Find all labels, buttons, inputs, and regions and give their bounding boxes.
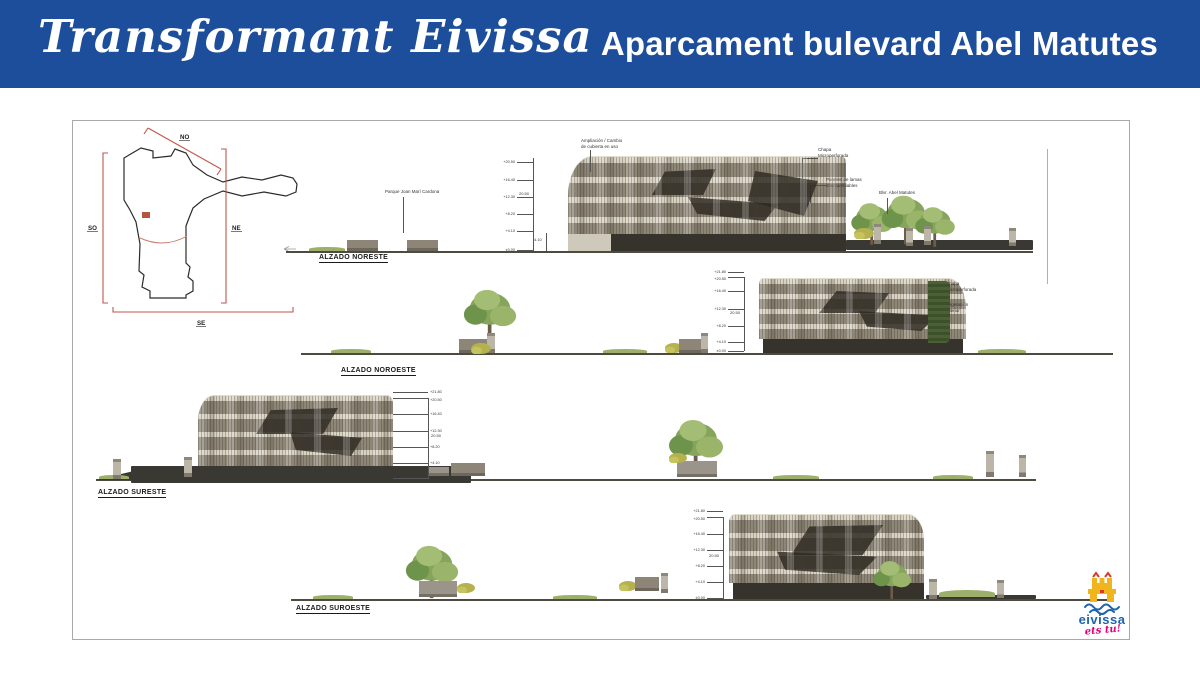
- leader-line: [403, 197, 404, 233]
- level-label: +20.50: [430, 398, 442, 402]
- facade-opening: [777, 549, 877, 575]
- level-line: [517, 197, 533, 198]
- level-label: +8.20: [505, 212, 515, 216]
- level-line: [728, 326, 744, 327]
- grass-mound: [553, 595, 597, 599]
- level-line: [393, 447, 428, 448]
- plan-label-ne: NE: [232, 225, 241, 232]
- site-plan: NO SO NE SE: [86, 126, 301, 336]
- building-facade: [198, 395, 393, 466]
- building-base: [611, 234, 846, 251]
- level-label: +21.80: [714, 270, 726, 274]
- level-line: [517, 214, 533, 215]
- level-line: [707, 598, 723, 599]
- grass-mound: [313, 595, 353, 599]
- level-label: +12.30: [503, 195, 515, 199]
- facade-opening: [791, 525, 883, 555]
- level-label: +8.20: [716, 324, 726, 328]
- level-label: +12.30: [430, 429, 442, 433]
- annotation-line: Ampliación / Cambio: [581, 138, 622, 144]
- dim-text: 20.50: [709, 553, 719, 558]
- level-label: +16.40: [503, 178, 515, 182]
- pillar: [924, 226, 931, 245]
- level-line: [517, 231, 533, 232]
- facade-opening: [859, 309, 937, 331]
- elevation-label: ALZADO SURESTE: [98, 489, 166, 498]
- level-label: +4.10: [695, 580, 705, 584]
- pillar: [929, 579, 937, 599]
- level-label: +20.50: [503, 160, 515, 164]
- level-line: [393, 392, 428, 393]
- facade-opening: [256, 408, 338, 434]
- facade-opening: [819, 291, 889, 313]
- level-label: +16.40: [430, 412, 442, 416]
- site-plan-red-marker: [142, 212, 150, 218]
- dim-line: [723, 517, 724, 599]
- level-line: [517, 180, 533, 181]
- pillar: [906, 228, 913, 246]
- pillar: [701, 333, 708, 353]
- shrub: [669, 453, 687, 463]
- plan-label-so: SO: [88, 225, 97, 232]
- facade-opening: [688, 197, 778, 221]
- eivissa-logo: eivissa ets tu!: [1073, 571, 1131, 635]
- grass-mound: [603, 349, 647, 353]
- plan-label-no: NO: [180, 134, 189, 141]
- annotation-roof: Ampliación / Cambio de cubierta en uso: [581, 138, 622, 149]
- dim-line: [428, 398, 429, 479]
- tree: [871, 559, 913, 601]
- annotation-boulevard: Blvr. Abel Matutes: [879, 190, 915, 196]
- level-label: +20.50: [714, 277, 726, 281]
- pillar: [113, 459, 121, 479]
- planter: [677, 461, 717, 477]
- level-label: +8.20: [430, 445, 440, 449]
- level-line: [707, 566, 723, 567]
- facade-opening: [652, 169, 716, 195]
- level-label: +8.20: [695, 564, 705, 568]
- level-line: [707, 550, 723, 551]
- logo-tagline: ets tu!: [1084, 623, 1121, 635]
- level-line: [728, 351, 744, 352]
- level-line: [728, 291, 744, 292]
- ground-line: [301, 353, 1113, 355]
- level-label: +21.80: [430, 390, 442, 394]
- facade-opening: [748, 171, 818, 221]
- level-line: [393, 398, 428, 399]
- open-ground-floor: [568, 234, 611, 251]
- logo-red-marks: [1093, 573, 1111, 577]
- level-line: [707, 517, 723, 518]
- drawing-sheet: NO SO NE SE: [72, 120, 1130, 640]
- level-label: +20.50: [693, 517, 705, 521]
- grass-mound: [933, 475, 973, 479]
- ground-line: [286, 251, 1033, 253]
- dim-text: 20.50: [431, 433, 441, 438]
- grass-mound: [939, 590, 995, 597]
- pillar: [874, 224, 881, 244]
- level-label: +12.30: [693, 548, 705, 552]
- level-line: [393, 478, 428, 479]
- dim-line: [744, 277, 745, 351]
- site-plan-arc: [140, 236, 187, 243]
- dim-text: 4.10: [534, 237, 542, 242]
- leader-line: [887, 198, 888, 214]
- planter: [419, 581, 457, 597]
- shrub: [457, 583, 475, 593]
- level-line: [393, 414, 428, 415]
- ground-platform: [131, 466, 471, 483]
- pillar: [1019, 455, 1026, 477]
- level-line: [728, 277, 744, 278]
- pillar: [661, 573, 668, 593]
- plan-label-se: SE: [197, 320, 205, 327]
- level-label: ±0.00: [430, 476, 439, 480]
- elevation-label: ALZADO NOROESTE: [341, 367, 416, 376]
- grass-mound: [773, 475, 819, 479]
- level-line: [728, 272, 744, 273]
- facade-opening: [290, 432, 362, 456]
- level-line: [517, 250, 533, 251]
- level-label: +12.30: [714, 307, 726, 311]
- low-building: [407, 240, 438, 251]
- slide: Transformant Eivissa Aparcament bulevard…: [0, 0, 1200, 675]
- level-label: +16.40: [714, 289, 726, 293]
- castle-door: [1100, 590, 1104, 593]
- level-label: +21.80: [693, 509, 705, 513]
- level-label: +4.10: [430, 461, 440, 465]
- tree: [913, 205, 957, 249]
- page-title: Aparcament bulevard Abel Matutes: [601, 25, 1158, 63]
- grass-mound: [309, 247, 345, 251]
- level-line: [728, 342, 744, 343]
- grass-mound: [978, 349, 1026, 353]
- level-line: [393, 431, 428, 432]
- low-building: [451, 463, 485, 476]
- annotation-line: de cubierta en uso: [581, 144, 622, 150]
- dim-text: 20.50: [730, 310, 740, 315]
- level-label: +16.40: [693, 532, 705, 536]
- level-line: [707, 511, 723, 512]
- elevation-label: ALZADO NORESTE: [319, 254, 388, 263]
- pillar: [184, 457, 192, 477]
- level-line: [393, 463, 428, 464]
- level-label: ±0.00: [696, 596, 705, 600]
- low-building: [347, 240, 378, 251]
- brand-script-text: Transformant Eivissa: [38, 10, 593, 63]
- annotation-park: Parque Joan Marí Cardona: [385, 189, 439, 195]
- green-facade: [928, 281, 950, 343]
- pillar: [986, 451, 994, 477]
- pillar: [1009, 228, 1016, 246]
- site-plan-brackets: [103, 128, 293, 312]
- site-plan-outline: [124, 148, 297, 298]
- level-label: +4.10: [505, 229, 515, 233]
- shrub: [854, 228, 874, 239]
- level-label: ±0.00: [506, 248, 515, 252]
- elevation-label: ALZADO SUROESTE: [296, 605, 370, 614]
- dim-text: 20.50: [519, 191, 529, 196]
- section-line: [1047, 149, 1048, 284]
- building-facade: [568, 156, 846, 234]
- level-label: +4.10: [716, 340, 726, 344]
- grass-mound: [331, 349, 371, 353]
- level-line: [707, 534, 723, 535]
- dim-line: [546, 233, 547, 251]
- level-label: ±0.00: [717, 349, 726, 353]
- header-bar: Transformant Eivissa Aparcament bulevard…: [0, 0, 1200, 88]
- level-line: [707, 582, 723, 583]
- low-building: [635, 577, 659, 591]
- pillar: [997, 580, 1004, 598]
- shrub: [471, 343, 491, 354]
- level-line: [517, 162, 533, 163]
